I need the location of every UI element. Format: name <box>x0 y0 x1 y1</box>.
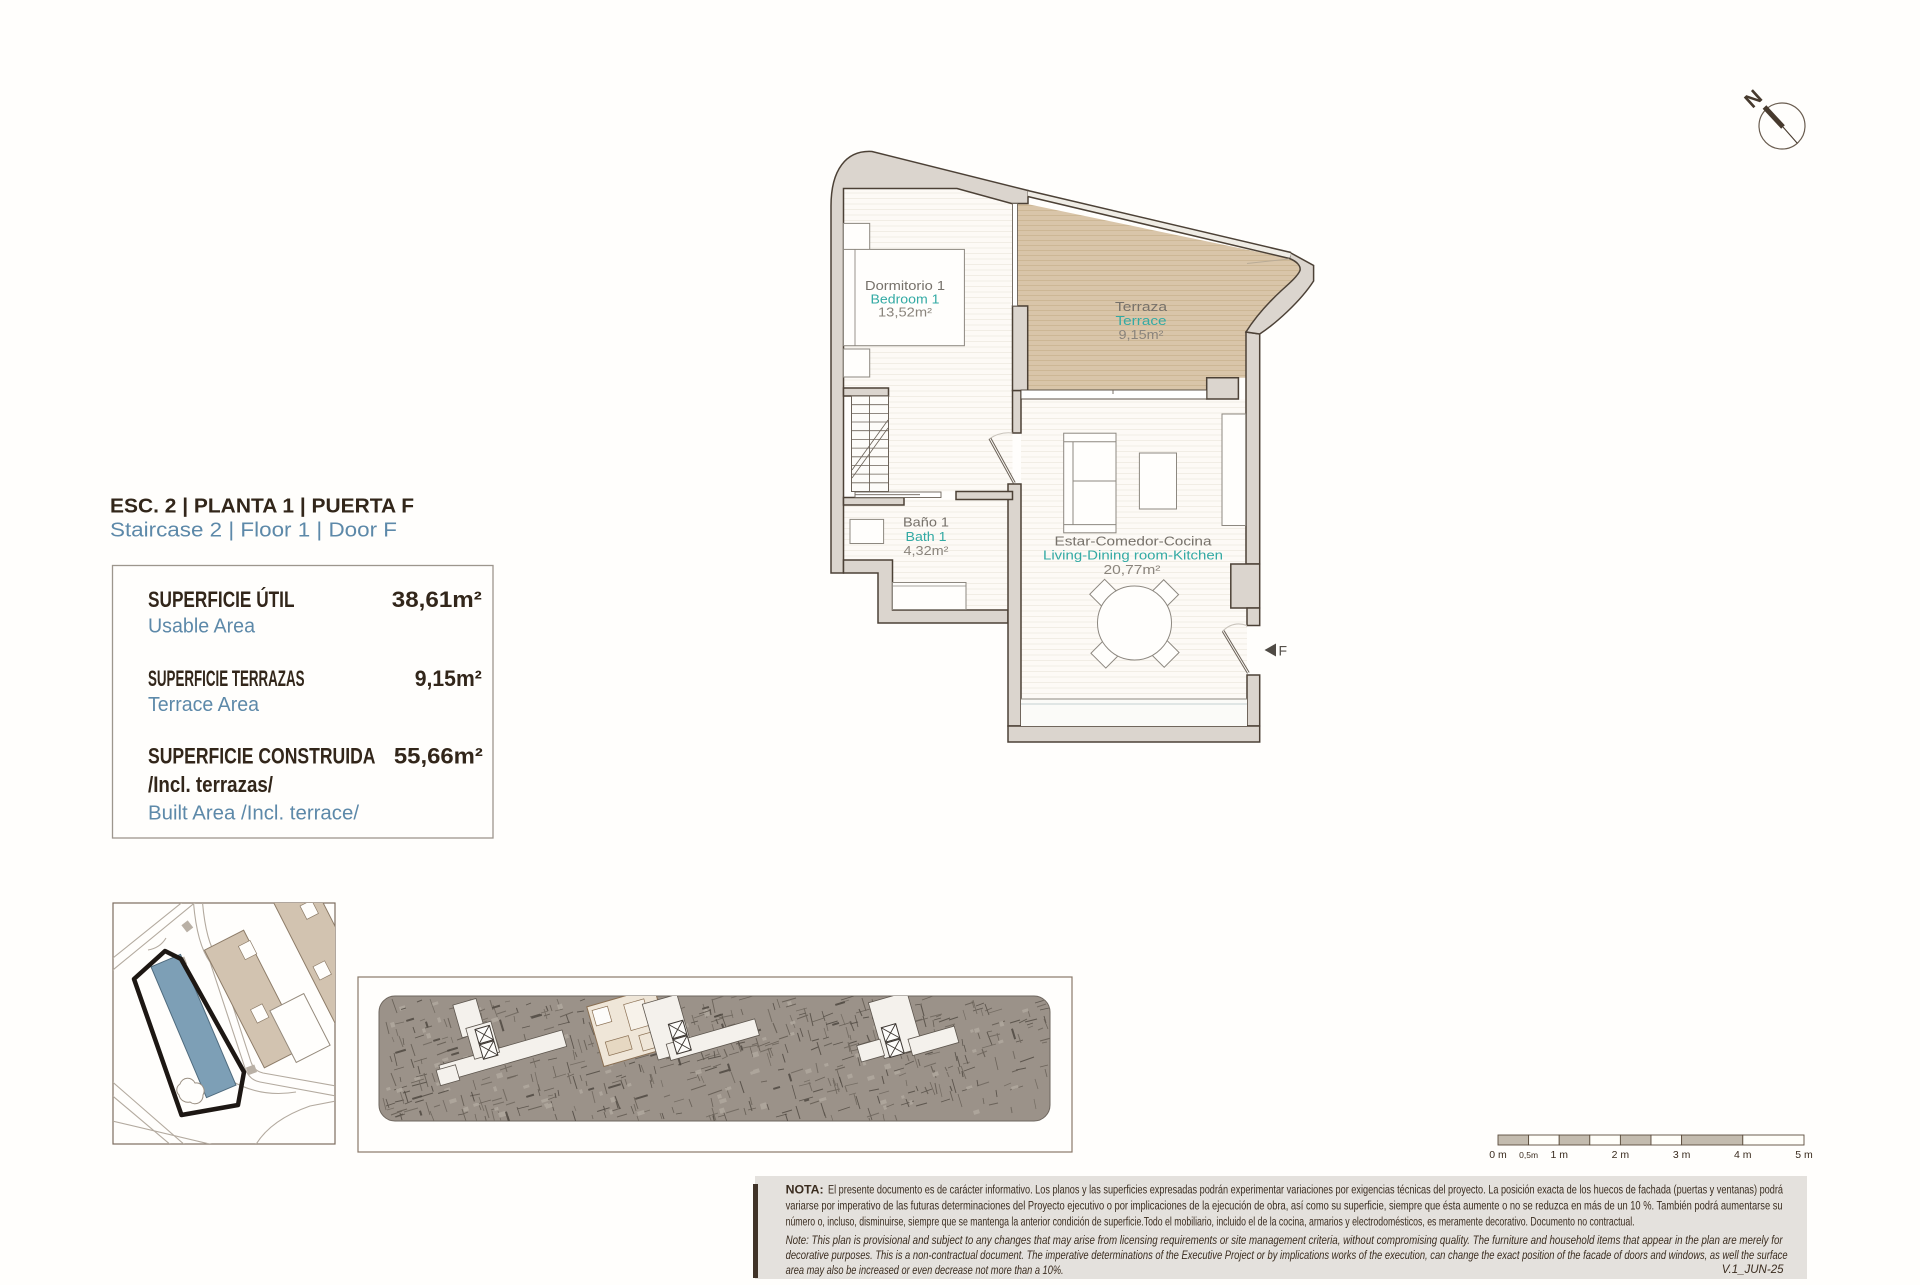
svg-text:Usable Area: Usable Area <box>148 616 256 638</box>
svg-text:F: F <box>1279 643 1288 659</box>
svg-text:Baño 1: Baño 1 <box>903 515 949 530</box>
svg-text:/Incl. terrazas/: /Incl. terrazas/ <box>148 772 273 797</box>
svg-text:Terrace Area: Terrace Area <box>148 694 260 716</box>
svg-text:0 m: 0 m <box>1489 1149 1507 1161</box>
svg-text:4,32m²: 4,32m² <box>904 543 950 558</box>
svg-text:Built Area /Incl. terrace/: Built Area /Incl. terrace/ <box>148 803 359 825</box>
svg-text:SUPERFICIE TERRAZAS: SUPERFICIE TERRAZAS <box>148 666 305 691</box>
svg-text:Bath 1: Bath 1 <box>906 529 947 544</box>
svg-text:38,61m²: 38,61m² <box>392 587 482 612</box>
svg-text:20,77m²: 20,77m² <box>1104 562 1162 577</box>
svg-text:NOTA:: NOTA: <box>786 1183 824 1197</box>
svg-text:SUPERFICIE ÚTIL: SUPERFICIE ÚTIL <box>148 587 295 612</box>
svg-text:número o, incluso, disminuirse: número o, incluso, disminuirse, siempre … <box>786 1215 1635 1229</box>
svg-text:variarse por imperativo de las: variarse por imperativo de las futuras d… <box>786 1199 1783 1213</box>
svg-text:55,66m²: 55,66m² <box>394 744 483 769</box>
svg-text:Living-Dining room-Kitchen: Living-Dining room-Kitchen <box>1043 548 1223 563</box>
svg-text:Estar-Comedor-Cocina: Estar-Comedor-Cocina <box>1055 534 1213 549</box>
svg-text:Terrace: Terrace <box>1116 313 1167 328</box>
svg-text:SUPERFICIE CONSTRUIDA: SUPERFICIE CONSTRUIDA <box>148 744 376 769</box>
svg-text:9,15m²: 9,15m² <box>415 666 482 691</box>
svg-text:5 m: 5 m <box>1795 1149 1813 1161</box>
svg-text:area may also be increased or: area may also be increased or even decre… <box>786 1263 1064 1277</box>
svg-text:9,15m²: 9,15m² <box>1119 327 1165 342</box>
svg-text:4 m: 4 m <box>1734 1149 1752 1161</box>
svg-text:Note: This plan is provisional: Note: This plan is provisional and subje… <box>786 1233 1784 1247</box>
svg-text:Staircase 2 | Floor 1 | Door F: Staircase 2 | Floor 1 | Door F <box>110 520 397 542</box>
svg-text:0,5m: 0,5m <box>1519 1150 1538 1160</box>
svg-text:2 m: 2 m <box>1612 1149 1630 1161</box>
svg-text:Terraza: Terraza <box>1115 299 1168 314</box>
svg-text:ESC. 2 | PLANTA 1 | PUERTA F: ESC. 2 | PLANTA 1 | PUERTA F <box>110 496 414 518</box>
svg-text:1 m: 1 m <box>1550 1149 1568 1161</box>
svg-text:decorative purposes. This is a: decorative purposes. This is a non-contr… <box>786 1248 1788 1262</box>
svg-text:3 m: 3 m <box>1673 1149 1691 1161</box>
svg-text:El presente documento es de ca: El presente documento es de carácter inf… <box>828 1183 1783 1197</box>
svg-text:13,52m²: 13,52m² <box>878 304 933 319</box>
svg-text:V.1_JUN-25: V.1_JUN-25 <box>1722 1264 1784 1276</box>
